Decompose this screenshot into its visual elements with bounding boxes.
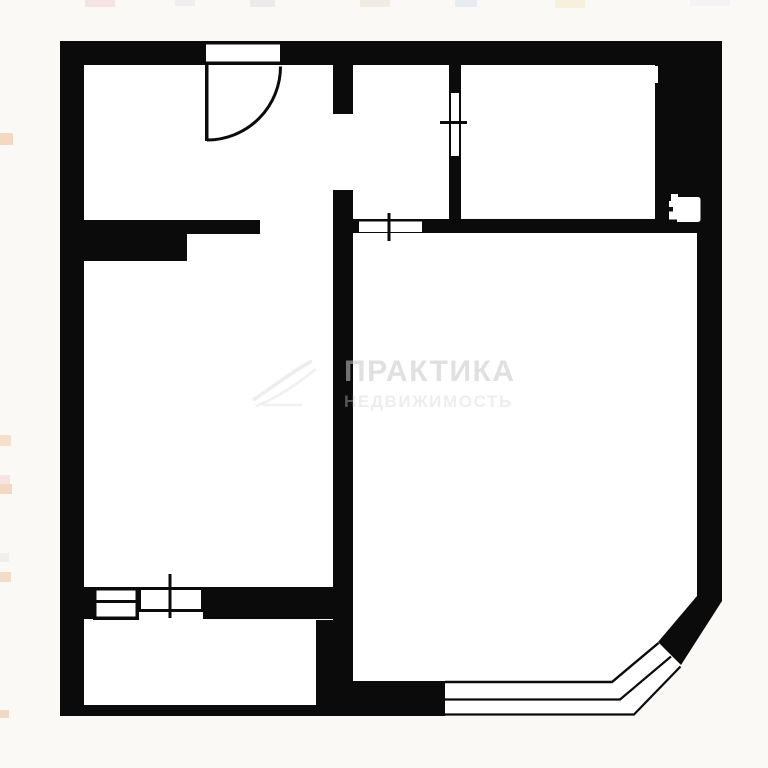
svg-text:ПРАКТИКА: ПРАКТИКА [344,355,516,388]
svg-text:НЕДВИЖИМОСТЬ: НЕДВИЖИМОСТЬ [344,392,513,411]
